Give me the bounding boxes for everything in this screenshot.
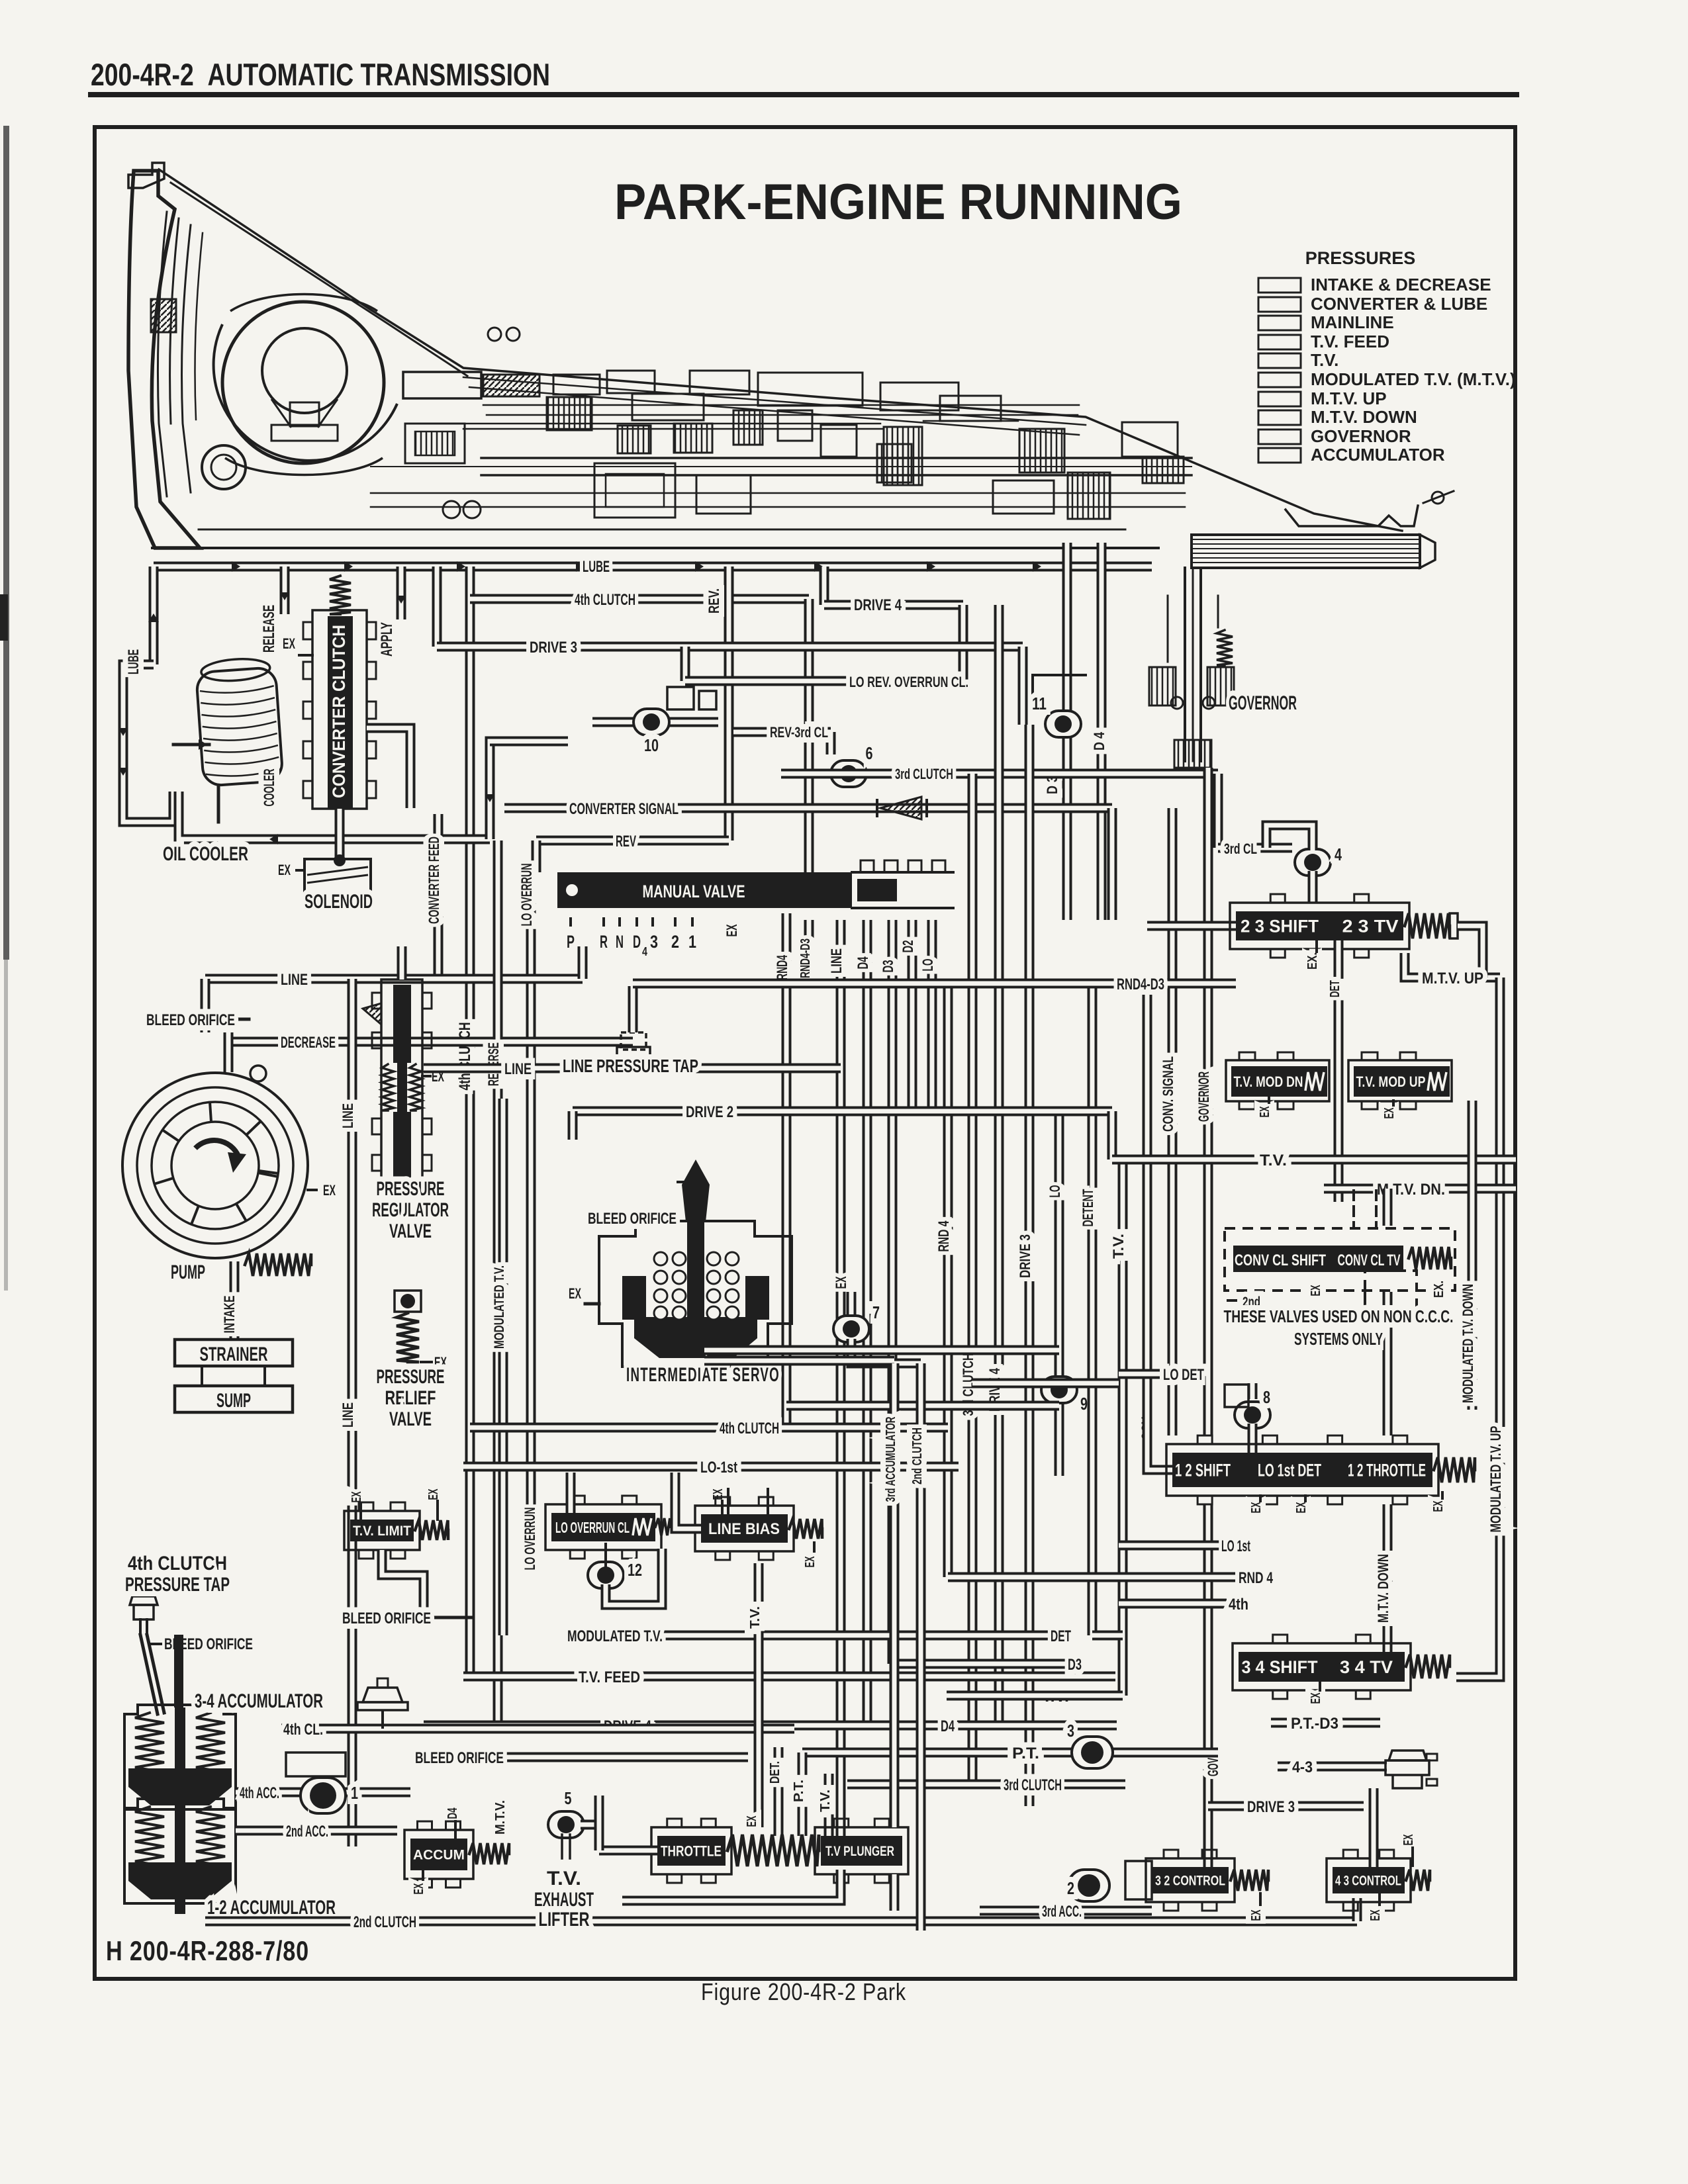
svg-text:CONV CL TV: CONV CL TV — [1338, 1251, 1401, 1269]
svg-text:3 4 SHIFT: 3 4 SHIFT — [1242, 1657, 1318, 1677]
svg-text:LINE PRESSURE TAP: LINE PRESSURE TAP — [563, 1056, 698, 1076]
svg-text:CONVERTER CLUTCH: CONVERTER CLUTCH — [329, 625, 349, 798]
svg-text:EX: EX — [1431, 1500, 1446, 1512]
svg-text:RELIEF: RELIEF — [385, 1387, 436, 1409]
svg-text:RND4: RND4 — [774, 955, 790, 980]
svg-text:M.T.V.: M.T.V. — [493, 1800, 508, 1835]
svg-text:T.V.: T.V. — [818, 1790, 833, 1812]
svg-text:D: D — [633, 932, 641, 952]
svg-text:GOVERNOR: GOVERNOR — [1311, 426, 1411, 446]
svg-text:D4: D4 — [445, 1807, 460, 1819]
svg-text:BLEED ORIFICE: BLEED ORIFICE — [146, 1011, 235, 1029]
svg-text:LO 1st DET: LO 1st DET — [1258, 1461, 1321, 1480]
svg-text:10: 10 — [644, 735, 659, 755]
svg-text:Figure 200-4R-2 Park: Figure 200-4R-2 Park — [701, 1978, 906, 2005]
svg-text:D4: D4 — [855, 956, 871, 970]
svg-text:DET: DET — [1051, 1627, 1071, 1645]
svg-text:CONVERTER FEED: CONVERTER FEED — [426, 837, 442, 924]
svg-text:LO OVERRUN CL: LO OVERRUN CL — [555, 1519, 630, 1536]
svg-text:4th CL.: 4th CL. — [283, 1721, 323, 1739]
svg-text:1-2 ACCUMULATOR: 1-2 ACCUMULATOR — [207, 1897, 336, 1919]
svg-text:VALVE: VALVE — [389, 1408, 432, 1430]
svg-text:4th ACC.: 4th ACC. — [240, 1784, 279, 1802]
svg-text:4 3 CONTROL: 4 3 CONTROL — [1335, 1874, 1401, 1889]
svg-text:4-3: 4-3 — [1292, 1758, 1313, 1776]
svg-text:RND4-D3: RND4-D3 — [1117, 976, 1164, 993]
svg-text:EX: EX — [1401, 1834, 1416, 1845]
svg-text:9: 9 — [1080, 1394, 1088, 1414]
svg-text:200-4R-2 AUTOMATIC TRANSMISSI: 200-4R-2 AUTOMATIC TRANSMISSION — [91, 57, 550, 92]
svg-text:EX: EX — [833, 1276, 849, 1289]
svg-text:EX: EX — [569, 1285, 581, 1302]
svg-text:LINE: LINE — [340, 1402, 356, 1428]
svg-text:T.V.: T.V. — [748, 1606, 763, 1629]
svg-text:MANUAL VALVE: MANUAL VALVE — [643, 882, 745, 901]
svg-text:MODULATED T.V. (M.T.V.): MODULATED T.V. (M.T.V.) — [1311, 369, 1516, 389]
svg-text:LO OVERRUN: LO OVERRUN — [518, 864, 535, 927]
svg-text:T.V. LIMIT: T.V. LIMIT — [353, 1524, 411, 1539]
svg-text:8: 8 — [1263, 1387, 1270, 1407]
svg-text:EX: EX — [745, 1815, 759, 1827]
svg-text:3rd CLUTCH: 3rd CLUTCH — [1004, 1776, 1062, 1794]
svg-text:THESE VALVES USED ON NON C.C.C: THESE VALVES USED ON NON C.C.C. — [1224, 1306, 1454, 1326]
svg-text:M.T.V. DOWN: M.T.V. DOWN — [1311, 407, 1417, 427]
svg-text:DECREASE: DECREASE — [281, 1034, 336, 1052]
svg-text:LINE BIAS: LINE BIAS — [708, 1520, 780, 1538]
svg-text:T.V.: T.V. — [547, 1868, 581, 1889]
svg-text:LO REV. OVERRUN CL.: LO REV. OVERRUN CL. — [849, 674, 968, 690]
svg-text:BLEED ORIFICE: BLEED ORIFICE — [588, 1210, 677, 1228]
svg-text:3: 3 — [650, 932, 658, 952]
svg-text:OIL COOLER: OIL COOLER — [163, 843, 248, 865]
svg-text:SUMP: SUMP — [216, 1390, 251, 1412]
svg-text:CONVERTER SIGNAL: CONVERTER SIGNAL — [569, 800, 679, 818]
svg-text:LIFTER: LIFTER — [539, 1909, 590, 1931]
svg-text:PRESSURE: PRESSURE — [377, 1366, 445, 1388]
svg-text:3 4 TV: 3 4 TV — [1340, 1657, 1393, 1677]
svg-text:6: 6 — [866, 743, 873, 763]
svg-text:3rd ACCUMULATOR: 3rd ACCUMULATOR — [884, 1416, 898, 1502]
svg-text:EXHAUST: EXHAUST — [534, 1889, 594, 1911]
svg-text:EX: EX — [1309, 1285, 1323, 1296]
svg-text:3rd ACC.: 3rd ACC. — [1042, 1903, 1082, 1921]
svg-text:DET: DET — [1328, 980, 1342, 997]
svg-text:T.V PLUNGER: T.V PLUNGER — [825, 1844, 894, 1859]
svg-text:PRESSURES: PRESSURES — [1305, 248, 1416, 268]
svg-text:INTERMEDIATE SERVO: INTERMEDIATE SERVO — [626, 1364, 780, 1386]
svg-text:EX.: EX. — [1305, 952, 1320, 970]
svg-text:DRIVE 2: DRIVE 2 — [686, 1103, 733, 1121]
svg-text:GOVERNOR: GOVERNOR — [1229, 692, 1297, 714]
svg-text:T.V. FEED: T.V. FEED — [579, 1668, 640, 1686]
svg-text:EX: EX — [803, 1556, 818, 1567]
svg-text:4: 4 — [1335, 844, 1342, 864]
svg-text:APPLY: APPLY — [378, 622, 396, 657]
svg-text:LO-1st: LO-1st — [700, 1459, 737, 1477]
svg-text:T.V.: T.V. — [1311, 350, 1338, 370]
svg-text:D2: D2 — [900, 940, 916, 953]
svg-text:2: 2 — [1067, 1878, 1074, 1898]
svg-text:7: 7 — [872, 1302, 880, 1322]
svg-text:2: 2 — [671, 932, 679, 952]
svg-text:4th CLUTCH: 4th CLUTCH — [720, 1420, 779, 1437]
svg-text:LINE: LINE — [340, 1103, 356, 1128]
svg-text:12: 12 — [628, 1560, 642, 1580]
svg-text:EX.: EX. — [1432, 1281, 1446, 1298]
svg-text:MODULATED T.V. DOWN: MODULATED T.V. DOWN — [1460, 1284, 1476, 1403]
svg-text:4th CLUTCH: 4th CLUTCH — [456, 1023, 474, 1091]
svg-text:EX: EX — [323, 1182, 336, 1199]
svg-text:RND 4: RND 4 — [1239, 1569, 1273, 1587]
svg-text:RND 4: RND 4 — [935, 1220, 952, 1252]
svg-text:ACCUMULATOR: ACCUMULATOR — [1311, 445, 1445, 465]
svg-text:LO DET: LO DET — [1163, 1366, 1204, 1384]
svg-text:DET.: DET. — [768, 1761, 782, 1784]
svg-text:LO: LO — [1047, 1185, 1063, 1198]
svg-text:REGULATOR: REGULATOR — [372, 1199, 449, 1221]
svg-text:BLEED ORIFICE: BLEED ORIFICE — [342, 1610, 431, 1627]
svg-text:EX: EX — [1382, 1107, 1397, 1118]
svg-text:1: 1 — [688, 932, 696, 952]
svg-text:MAINLINE: MAINLINE — [1311, 312, 1394, 332]
svg-text:VALVE: VALVE — [389, 1220, 432, 1242]
svg-text:T.V.: T.V. — [1260, 1152, 1287, 1169]
svg-text:2nd CLUTCH: 2nd CLUTCH — [353, 1913, 416, 1931]
svg-text:1 2 SHIFT: 1 2 SHIFT — [1175, 1461, 1231, 1480]
svg-text:1: 1 — [351, 1783, 358, 1803]
svg-text:M.T.V. UP: M.T.V. UP — [1311, 388, 1387, 408]
svg-text:3: 3 — [1067, 1721, 1074, 1741]
svg-text:4: 4 — [642, 945, 647, 958]
svg-text:LINE: LINE — [281, 971, 308, 989]
svg-text:INTAKE: INTAKE — [221, 1296, 238, 1334]
svg-text:DRIVE 3: DRIVE 3 — [1247, 1798, 1295, 1816]
svg-text:PRESSURE: PRESSURE — [377, 1178, 445, 1200]
svg-text:REV-3rd CL: REV-3rd CL — [770, 724, 828, 741]
svg-text:COOLER: COOLER — [261, 768, 277, 806]
svg-text:11: 11 — [1032, 694, 1047, 713]
svg-text:EX: EX — [283, 635, 295, 652]
svg-text:EX: EX — [1258, 1106, 1272, 1117]
svg-text:2 3 SHIFT: 2 3 SHIFT — [1241, 917, 1319, 936]
svg-text:DETENT: DETENT — [1080, 1189, 1096, 1226]
svg-text:STRAINER: STRAINER — [200, 1343, 268, 1365]
svg-text:EX: EX — [1309, 1692, 1323, 1704]
svg-text:LO 1st: LO 1st — [1221, 1537, 1250, 1555]
svg-text:4th CLUTCH: 4th CLUTCH — [575, 591, 635, 609]
svg-text:SYSTEMS ONLY: SYSTEMS ONLY — [1294, 1329, 1383, 1349]
svg-text:CONV CL SHIFT: CONV CL SHIFT — [1235, 1251, 1326, 1269]
svg-text:EX: EX — [278, 862, 291, 878]
svg-text:4th CLUTCH: 4th CLUTCH — [128, 1553, 227, 1574]
svg-text:3rd CL: 3rd CL — [1224, 841, 1257, 857]
svg-text:1 2 THROTTLE: 1 2 THROTTLE — [1348, 1461, 1426, 1480]
svg-text:LUBE: LUBE — [125, 649, 142, 674]
svg-text:BLEED ORIFICE: BLEED ORIFICE — [415, 1749, 504, 1767]
svg-text:THROTTLE: THROTTLE — [661, 1843, 722, 1859]
svg-text:T.V.: T.V. — [1110, 1234, 1127, 1259]
svg-text:D3: D3 — [1068, 1656, 1082, 1674]
svg-text:MODULATED T.V. UP: MODULATED T.V. UP — [1487, 1426, 1504, 1533]
svg-text:DRIVE 3: DRIVE 3 — [1017, 1234, 1033, 1278]
svg-text:P.T.-D3: P.T.-D3 — [1291, 1715, 1338, 1733]
svg-text:EX: EX — [426, 1488, 441, 1500]
svg-text:3 2 CONTROL: 3 2 CONTROL — [1155, 1874, 1225, 1889]
svg-text:2nd CLUTCH: 2nd CLUTCH — [910, 1428, 925, 1484]
svg-text:3-4 ACCUMULATOR: 3-4 ACCUMULATOR — [195, 1690, 323, 1712]
svg-text:PRESSURE TAP: PRESSURE TAP — [125, 1574, 230, 1596]
svg-text:T.V. MOD UP: T.V. MOD UP — [1356, 1073, 1426, 1090]
svg-text:RND4-D3: RND4-D3 — [798, 938, 813, 978]
svg-text:2 3 TV: 2 3 TV — [1342, 917, 1399, 936]
svg-text:EX: EX — [1294, 1502, 1309, 1513]
svg-text:D4: D4 — [941, 1717, 955, 1735]
svg-text:EX: EX — [350, 1491, 364, 1502]
svg-text:CONV. SIGNAL: CONV. SIGNAL — [1160, 1056, 1176, 1132]
svg-text:EX: EX — [724, 924, 740, 936]
svg-text:T.V. FEED: T.V. FEED — [1311, 332, 1389, 351]
svg-text:CONVERTER & LUBE: CONVERTER & LUBE — [1311, 294, 1487, 314]
svg-text:P: P — [567, 932, 575, 952]
svg-text:D3: D3 — [880, 960, 896, 973]
svg-text:PUMP: PUMP — [171, 1261, 205, 1283]
svg-text:DRIVE 3: DRIVE 3 — [530, 639, 577, 657]
svg-text:LO OVERRUN: LO OVERRUN — [522, 1508, 538, 1570]
svg-text:MODULATED T.V.: MODULATED T.V. — [567, 1627, 663, 1645]
svg-text:REV.: REV. — [706, 588, 722, 614]
svg-text:2nd ACC.: 2nd ACC. — [286, 1823, 328, 1841]
svg-text:M.T.V. DOWN: M.T.V. DOWN — [1375, 1554, 1391, 1623]
svg-text:MODULATED T.V.: MODULATED T.V. — [492, 1265, 507, 1349]
svg-text:EX: EX — [1249, 1909, 1264, 1921]
svg-text:5: 5 — [565, 1788, 572, 1808]
svg-text:EX: EX — [1249, 1502, 1264, 1513]
svg-text:EX: EX — [1368, 1909, 1383, 1921]
svg-text:LUBE: LUBE — [583, 558, 610, 576]
svg-text:D 4: D 4 — [1091, 731, 1107, 751]
svg-text:DRIVE 4: DRIVE 4 — [854, 596, 902, 614]
svg-text:H 200-4R-288-7/80: H 200-4R-288-7/80 — [106, 1935, 309, 1966]
svg-text:RELEASE: RELEASE — [260, 605, 278, 653]
svg-text:LINE: LINE — [504, 1060, 532, 1078]
svg-text:M.T.V. UP: M.T.V. UP — [1422, 970, 1483, 987]
svg-text:SOLENOID: SOLENOID — [305, 891, 373, 913]
svg-text:EX: EX — [412, 1883, 426, 1894]
svg-text:GOVERNOR: GOVERNOR — [1196, 1071, 1212, 1122]
svg-text:T.V. MOD DN: T.V. MOD DN — [1234, 1073, 1303, 1090]
svg-text:REV: REV — [616, 833, 636, 850]
svg-text:PARK-ENGINE RUNNING: PARK-ENGINE RUNNING — [614, 174, 1182, 230]
svg-text:LINE: LINE — [828, 948, 845, 974]
svg-text:4th: 4th — [1229, 1596, 1248, 1614]
svg-text:N: N — [616, 932, 624, 952]
svg-text:3rd CLUTCH: 3rd CLUTCH — [895, 766, 953, 782]
svg-text:R: R — [600, 932, 608, 952]
svg-text:GOV: GOV — [1205, 1758, 1221, 1776]
svg-text:LO: LO — [919, 959, 936, 972]
svg-text:P.T.: P.T. — [1012, 1745, 1039, 1762]
svg-text:ACCUM: ACCUM — [413, 1848, 465, 1863]
svg-text:P.T.: P.T. — [792, 1780, 806, 1802]
svg-text:INTAKE & DECREASE: INTAKE & DECREASE — [1311, 275, 1491, 295]
svg-text:EX: EX — [711, 1488, 726, 1500]
